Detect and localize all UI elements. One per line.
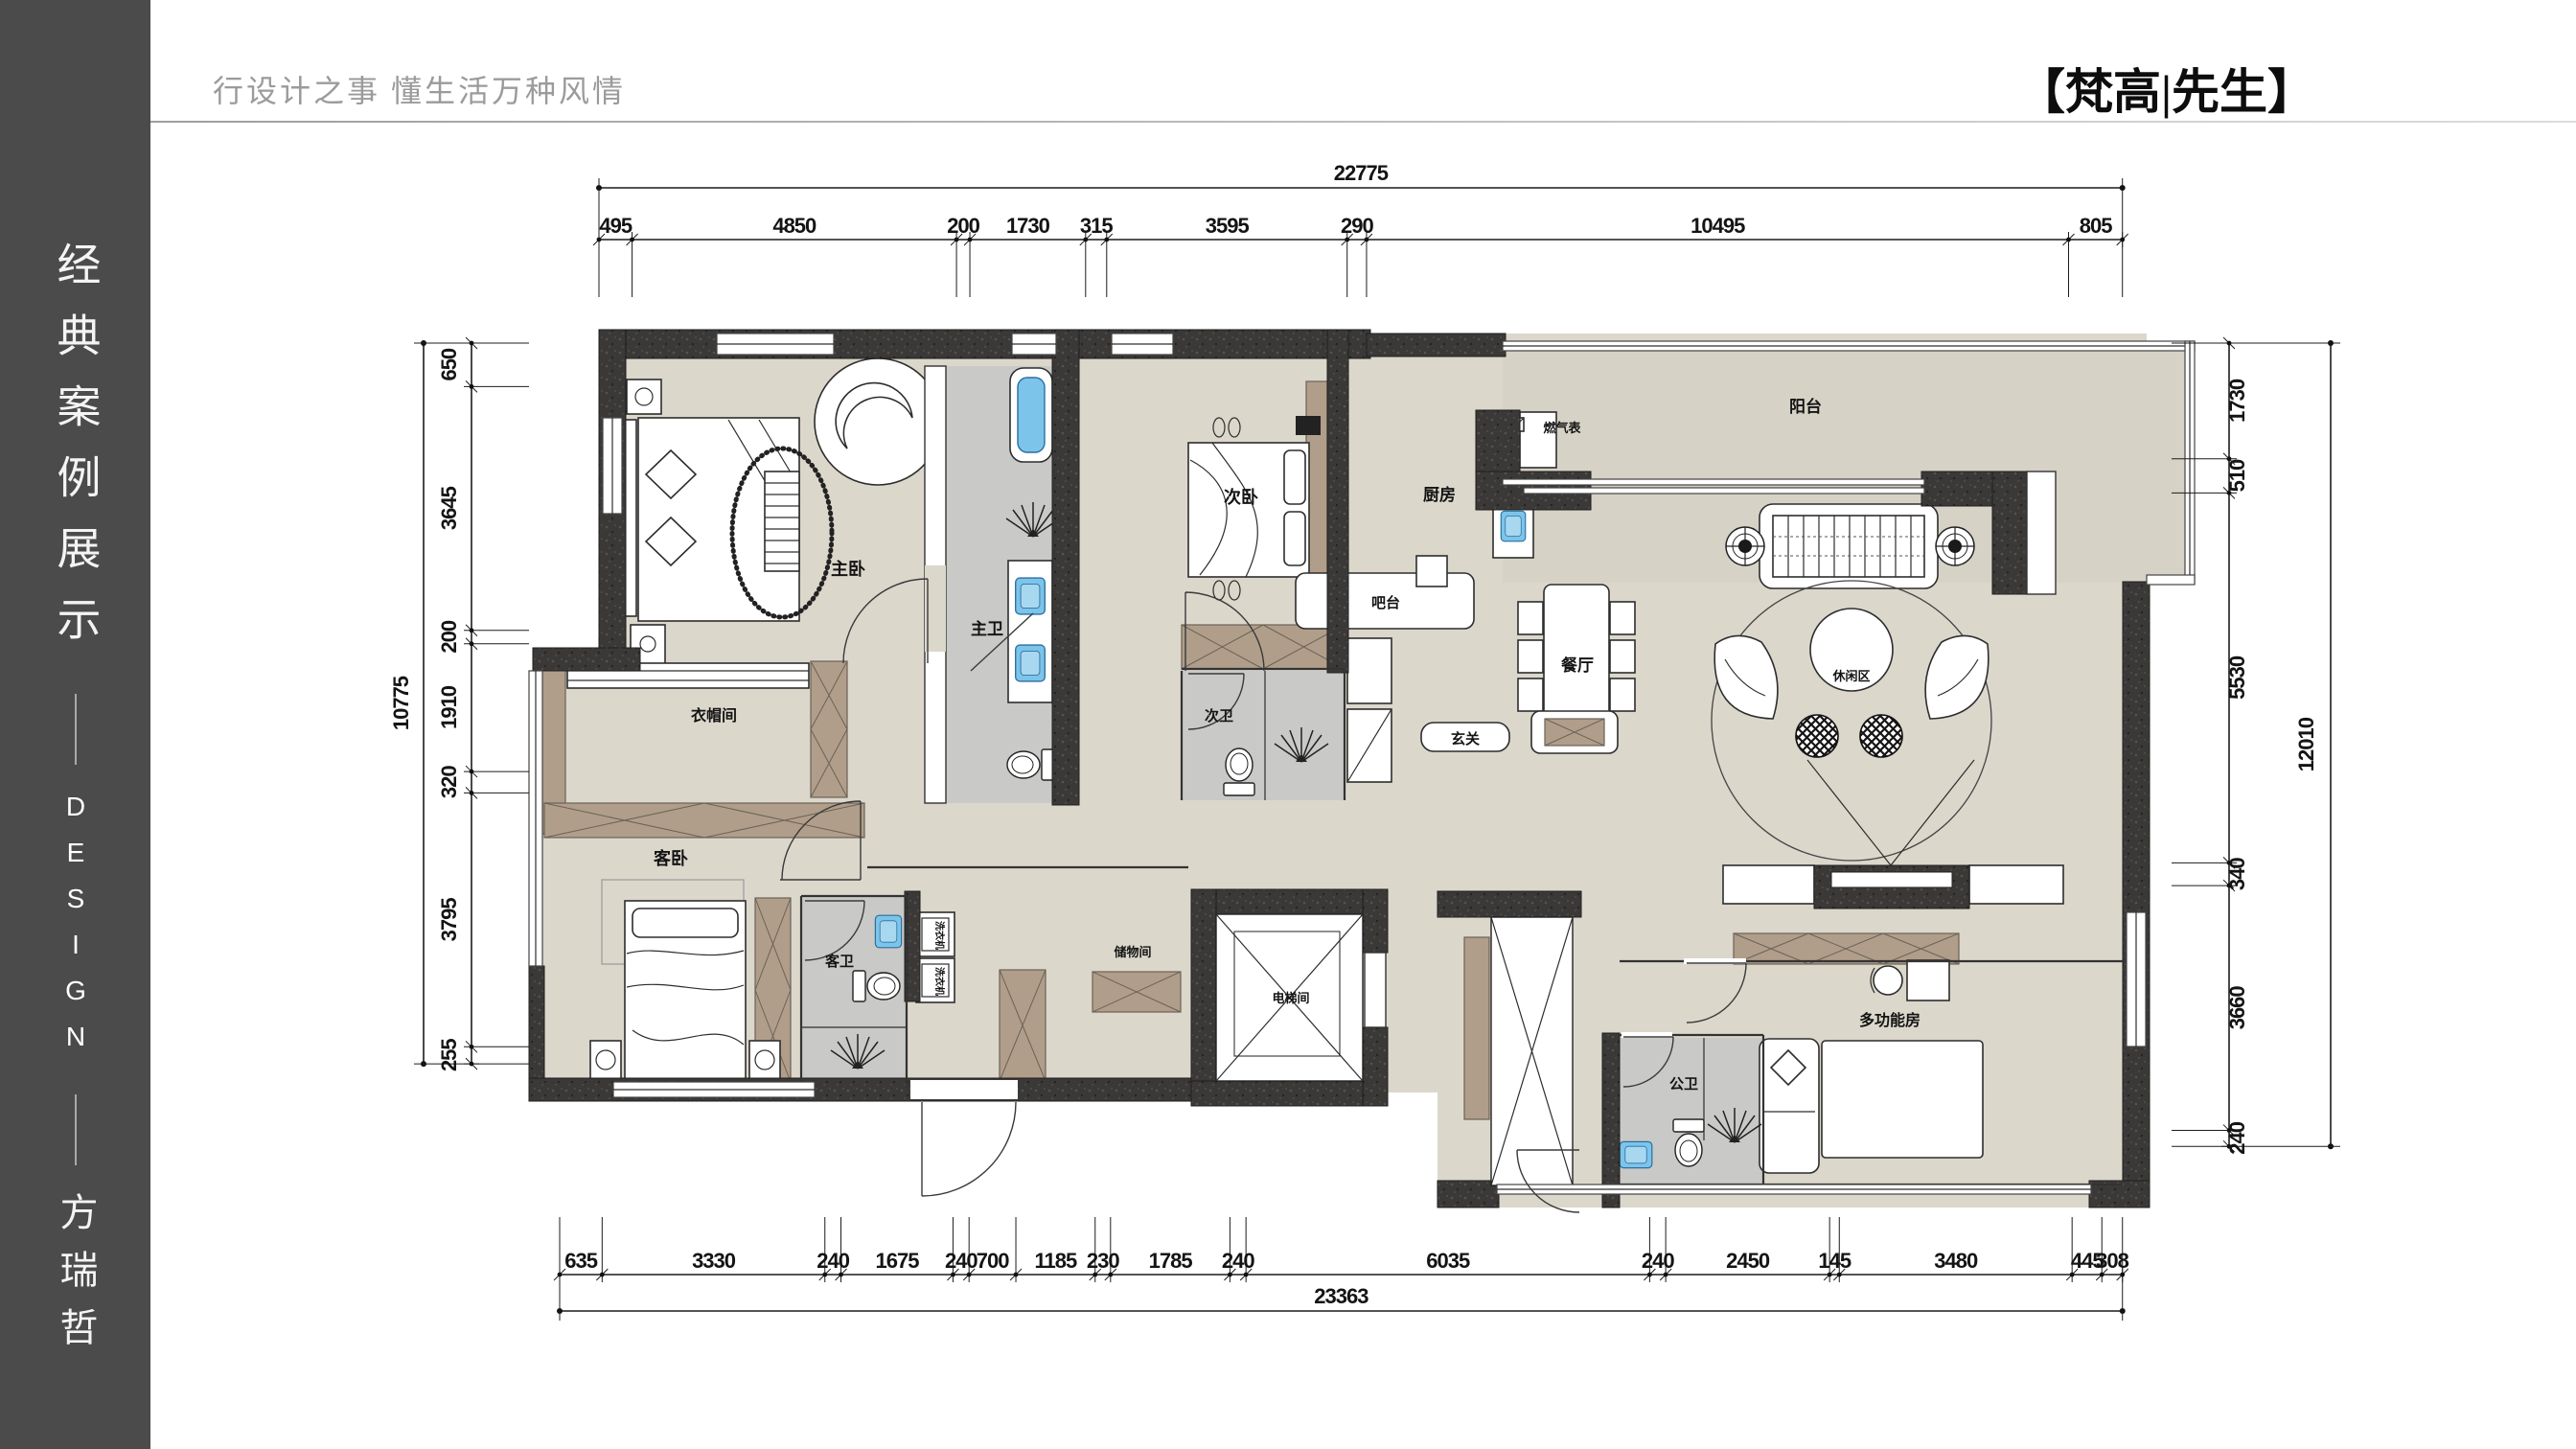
header-brand: 【梵高|先生】	[2017, 54, 2315, 123]
dimension-label: 200	[947, 214, 979, 238]
rattan-stool	[1796, 715, 1838, 757]
room-label-multi-room: 多功能房	[1859, 1011, 1920, 1029]
sidebar-author: 方瑞哲	[48, 1192, 103, 1365]
dimension-label: 340	[2225, 858, 2249, 890]
header-slogan: 行设计之事 懂生活万种风情	[213, 67, 626, 111]
round-chaise	[815, 358, 941, 485]
dimension-label: 3595	[1206, 214, 1250, 238]
dimension-label: 10775	[389, 676, 413, 730]
dimension-label: 320	[437, 766, 461, 798]
rattan-stool	[1860, 715, 1902, 757]
dimension-label: 10495	[1690, 214, 1745, 238]
tv	[1831, 872, 1952, 887]
dimension-label: 3330	[692, 1249, 736, 1273]
dimension-label: 1785	[1149, 1249, 1193, 1273]
dimension-label: 700	[977, 1249, 1009, 1273]
room-label-public-bath: 公卫	[1669, 1076, 1698, 1092]
desk	[1907, 960, 1949, 1000]
dimension-label: 240	[945, 1249, 977, 1273]
room-label-closet: 衣帽间	[691, 706, 737, 724]
room-label-master-bedroom: 主卧	[831, 559, 865, 579]
page: { "sidebar": { "title": "经典案例展示", "desig…	[0, 0, 2576, 1449]
dimension-label: 1730	[2225, 379, 2249, 423]
dimension-label: 240	[1642, 1249, 1674, 1273]
dimension-label: 1185	[1035, 1249, 1077, 1273]
room-label-storage: 储物间	[1113, 945, 1151, 959]
dimension-label: 3795	[437, 898, 461, 942]
dimension-label: 1910	[437, 685, 461, 729]
dimension-label: 1675	[875, 1249, 919, 1273]
dimension-label: 2450	[1726, 1249, 1770, 1273]
room-label-bar: 吧台	[1371, 594, 1400, 611]
room-label-washer-top: 洗衣机	[933, 921, 946, 950]
room-label-guest-bath: 客卫	[824, 953, 854, 970]
room-label-elevator: 电梯间	[1272, 991, 1309, 1005]
dimension-label: 495	[599, 214, 632, 238]
room-label-second-bath: 次卫	[1205, 707, 1233, 724]
sidebar-design-label: DESIGN	[60, 792, 91, 1068]
dimension-label: 1730	[1006, 214, 1050, 238]
dimension-label: 315	[1080, 214, 1113, 238]
dimension-label: 3645	[437, 486, 461, 530]
room-label-washer-bottom: 洗衣机	[933, 967, 946, 996]
dimension-label: 6035	[1426, 1249, 1470, 1273]
dimension-label: 650	[437, 348, 461, 380]
dimension-label: 510	[2225, 459, 2249, 492]
room-label-gas-meter: 燃气表	[1543, 421, 1581, 435]
room-label-dining: 餐厅	[1561, 655, 1594, 675]
floor-plan: 4954850200173031535952901049580522775635…	[0, 0, 2576, 1449]
dimension-label: 255	[437, 1039, 461, 1071]
dimension-label: 805	[2080, 214, 2112, 238]
dimension-label: 240	[1222, 1249, 1254, 1273]
dimension-label: 290	[1341, 214, 1373, 238]
room-label-kitchen: 厨房	[1423, 485, 1456, 504]
sidebar: 经典案例展示 DESIGN 方瑞哲	[0, 0, 150, 1449]
room-label-balcony: 阳台	[1789, 397, 1822, 416]
room-label-master-bath: 主卫	[971, 619, 1003, 638]
dimension-label: 635	[564, 1249, 597, 1273]
room-label-guest-bedroom: 客卧	[654, 848, 688, 868]
dimension-label: 23363	[1314, 1284, 1368, 1308]
dimension-label: 3660	[2225, 986, 2249, 1030]
dimension-label: 145	[1818, 1249, 1851, 1273]
sidebar-divider-bottom	[75, 1094, 77, 1165]
dimension-label: 5530	[2225, 655, 2249, 700]
dimension-label: 3480	[1934, 1249, 1978, 1273]
dimension-label: 240	[2225, 1121, 2249, 1154]
room-label-second-bedroom: 次卧	[1224, 487, 1258, 507]
sidebar-divider-top	[75, 694, 77, 765]
second-bath-floor	[1182, 671, 1345, 800]
dimension-label: 230	[1087, 1249, 1119, 1273]
sidebar-title: 经典案例展示	[44, 241, 107, 667]
multi-room-bed	[1822, 1041, 1983, 1158]
room-label-entry: 玄关	[1451, 730, 1480, 747]
dimension-label: 4850	[772, 214, 816, 238]
dimension-label: 22775	[1334, 161, 1389, 185]
dimension-label: 12010	[2294, 717, 2318, 771]
dimension-label: 308	[2096, 1249, 2128, 1273]
dimension-label: 200	[437, 620, 461, 653]
dimension-label: 240	[816, 1249, 849, 1273]
room-label-leisure: 休闲区	[1831, 669, 1870, 683]
